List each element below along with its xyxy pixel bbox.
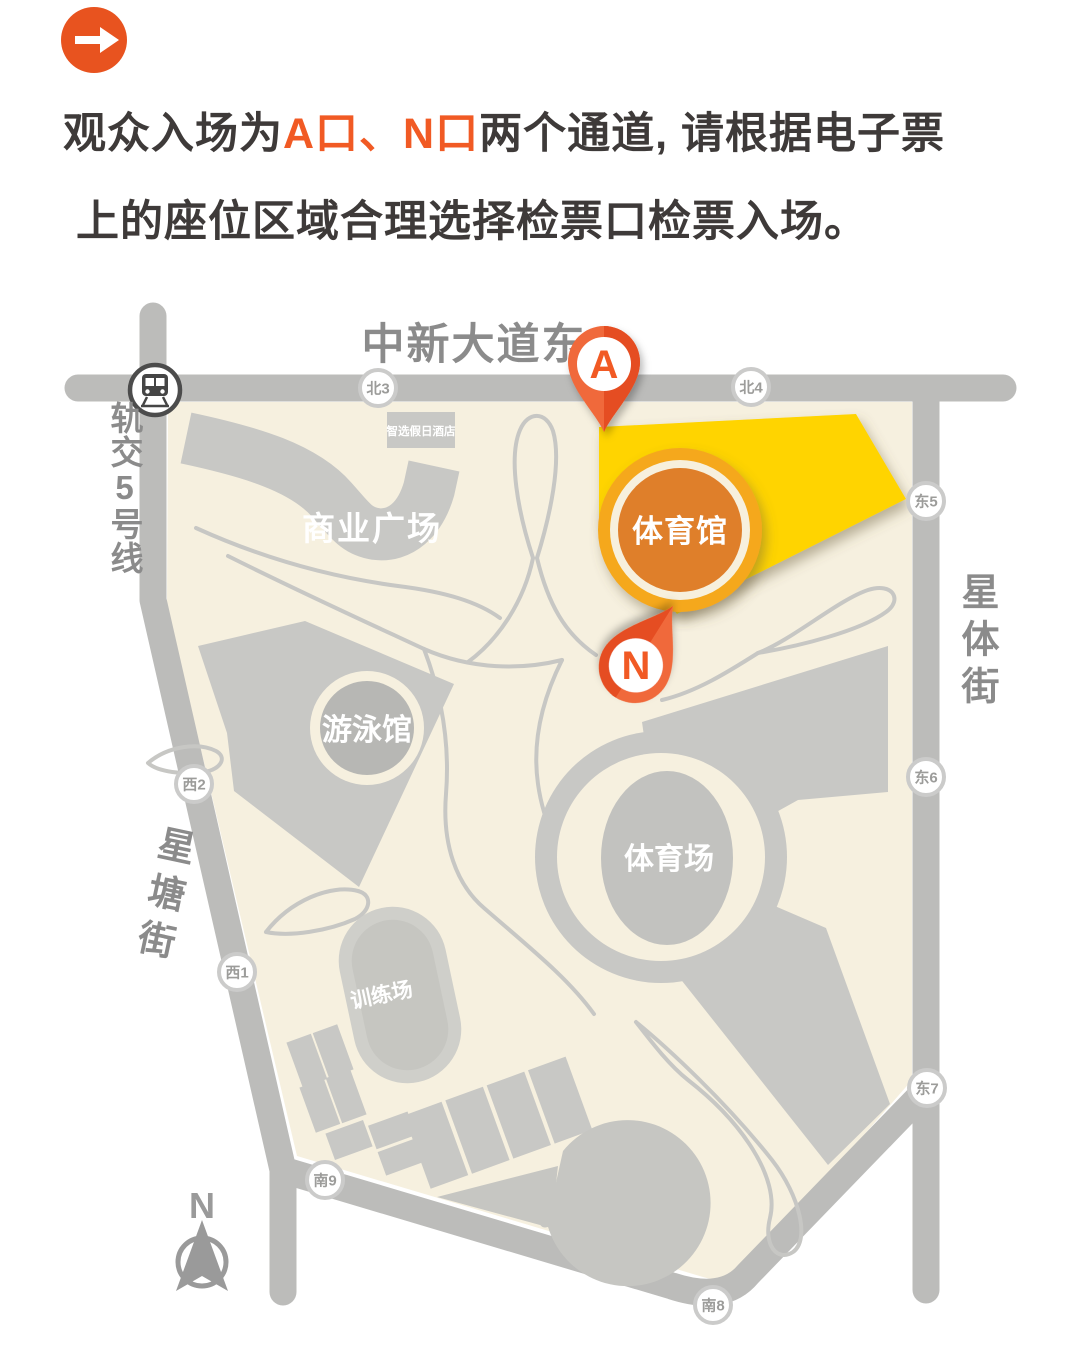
gate-north4-label: 北4 — [739, 380, 763, 397]
gate-west1-label: 西1 — [225, 965, 248, 982]
gate-west1: 西1 — [219, 954, 255, 990]
gate-east5: 东5 — [908, 483, 944, 519]
east-street-label: 星体街 — [949, 572, 1004, 713]
gate-west2: 西2 — [176, 766, 212, 802]
headline-line1-highlight: A口、N口 — [283, 110, 479, 158]
fan-dot — [540, 1217, 551, 1228]
gate-north3-label: 北3 — [366, 381, 389, 398]
north-avenue-label: 中新大道东 — [362, 321, 587, 369]
metro-line-label: 轨交5号线 — [100, 401, 148, 575]
stadium-label: 体育场 — [624, 842, 714, 876]
gate-east6-label: 东6 — [914, 769, 937, 787]
pool-label: 游泳馆 — [322, 713, 412, 747]
gate-south8-label: 南8 — [701, 1297, 724, 1315]
gate-east7: 东7 — [909, 1070, 945, 1106]
compass-n-label: N — [189, 1185, 215, 1226]
gate-east6: 东6 — [908, 759, 944, 795]
headline-line1-suffix: 两个通道, 请根据电子票 — [479, 110, 945, 158]
gate-east7-label: 东7 — [915, 1080, 938, 1098]
headline-line1: 观众入场为A口、N口两个通道, 请根据电子票 — [63, 99, 945, 161]
compass-needle-icon — [176, 1220, 228, 1291]
gate-west2-label: 西2 — [182, 777, 205, 794]
fan-building — [547, 1120, 711, 1286]
gate-north4: 北4 — [733, 369, 769, 405]
arrow-right-icon — [60, 6, 128, 79]
hotel-label: 智选假日酒店 — [387, 424, 456, 438]
headline-line1-prefix: 观众入场为 — [63, 110, 283, 158]
headline-line2: 上的座位区域合理选择检票口检票入场。 — [76, 187, 868, 249]
gate-east5-label: 东5 — [914, 493, 937, 511]
gate-south9: 南9 — [307, 1162, 343, 1198]
a-pin-label: A — [590, 343, 619, 387]
entrance-guide-poster: 智选假日酒店 商业广场 游泳馆 体育场 训练场 — [0, 0, 1080, 1350]
n-pin-label: N — [622, 644, 651, 688]
gate-south8: 南8 — [695, 1287, 731, 1323]
gate-north3: 北3 — [360, 370, 396, 406]
gate-south9-label: 南9 — [313, 1172, 336, 1190]
compass: N — [176, 1185, 228, 1291]
arena-label: 体育馆 — [632, 514, 728, 549]
plaza-label: 商业广场 — [302, 510, 442, 547]
